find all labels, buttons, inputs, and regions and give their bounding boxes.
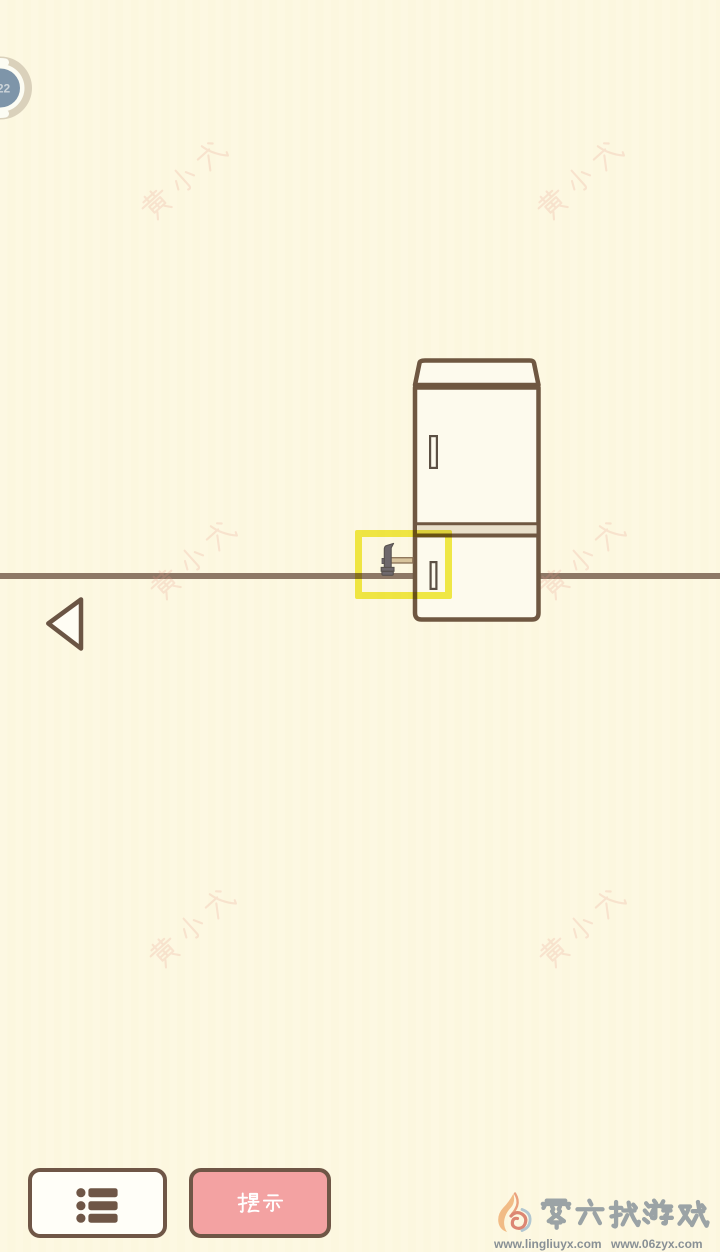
svg-text:22: 22	[0, 82, 10, 96]
